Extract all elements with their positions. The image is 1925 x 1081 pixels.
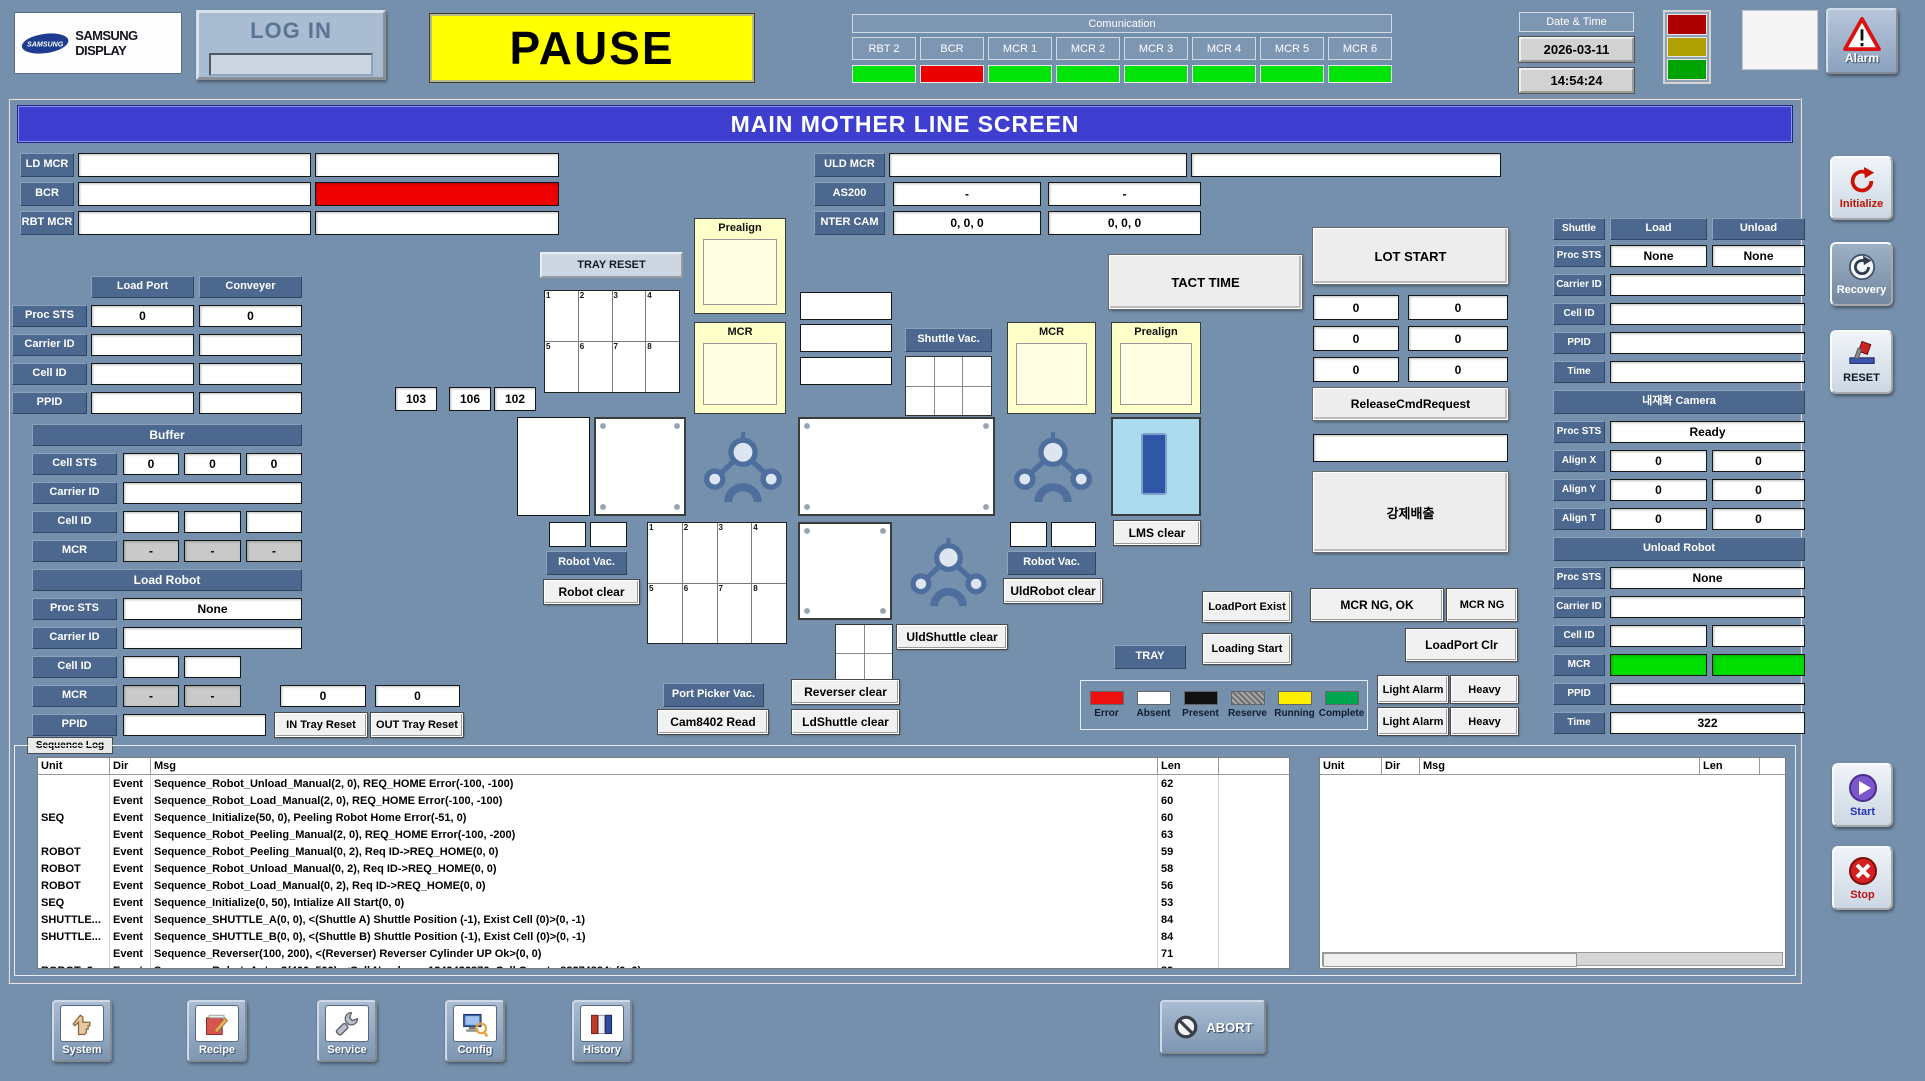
as200-label: AS200 — [814, 182, 885, 206]
lot-counter-field: 0 — [1408, 326, 1508, 351]
vac-slot-right-1 — [1010, 522, 1047, 547]
tray-slot[interactable]: 3 — [718, 523, 752, 583]
stop-x-icon — [1847, 855, 1879, 887]
comm-channel-label: RBT 2 — [852, 37, 916, 60]
log-row[interactable]: Event Sequence_Robot_Unload_Manual(2, 0)… — [38, 775, 1289, 792]
out-tray-grid: 12345678 — [647, 522, 787, 644]
as200-field-1: - — [893, 182, 1041, 206]
lr-mcr-label: MCR — [32, 685, 117, 707]
legend-swatch — [1231, 691, 1265, 705]
log-header-row: Unit Dir Msg Len — [38, 758, 1289, 775]
datetime-panel: Date & Time 2026-03-11 14:54:24 — [1519, 12, 1634, 92]
comm-channel-label: MCR 4 — [1192, 37, 1256, 60]
lr-mcr-2: - — [184, 685, 241, 707]
ur-cell-id-label: Cell ID — [1553, 625, 1605, 647]
comm-status-light — [1260, 65, 1324, 83]
light-alarm-button-2[interactable]: Light Alarm — [1378, 708, 1448, 735]
ur-mcr-label: MCR — [1553, 654, 1605, 676]
buffer-slot-1 — [800, 292, 892, 320]
start-play-icon — [1847, 772, 1879, 804]
comm-status-light — [1192, 65, 1256, 83]
sequence-log-table-right: Unit Dir Msg Len — [1319, 757, 1786, 969]
communication-channels: RBT 2 BCR MCR 1 MCR 2 — [852, 37, 1392, 83]
load-robot-header: Load Robot — [32, 569, 302, 591]
brand-name: SAMSUNG DISPLAY — [75, 28, 176, 58]
tray-label: TRAY — [1114, 645, 1186, 669]
datetime-title: Date & Time — [1519, 12, 1634, 32]
communication-title: Comunication — [852, 14, 1392, 33]
buf-cell-sts-label: Cell STS — [32, 453, 117, 475]
ur-cell-id-1 — [1610, 625, 1707, 647]
lr-mcr-1: - — [123, 685, 179, 707]
center-cam-label: NTER CAM — [814, 211, 885, 235]
comm-status-light — [1124, 65, 1188, 83]
recovery-button[interactable]: Recovery — [1830, 242, 1893, 306]
ur-ppid-label: PPID — [1553, 683, 1605, 705]
tray-slot[interactable]: 8 — [752, 584, 786, 644]
comm-channel: BCR — [920, 37, 984, 83]
sh-cell-id — [1610, 303, 1805, 325]
cam-proc-sts-label: Proc STS — [1553, 421, 1605, 443]
port-number-106: 106 — [449, 387, 491, 411]
tower-lamp-red — [1667, 14, 1707, 35]
tray-slot[interactable]: 3 — [613, 291, 646, 341]
align-t-1: 0 — [1610, 508, 1707, 530]
comm-channel: MCR 2 — [1056, 37, 1120, 83]
tray-slot[interactable]: 5 — [545, 342, 578, 392]
sh-carrier-id-label: Carrier ID — [1553, 274, 1605, 296]
center-cam-field-1: 0, 0, 0 — [893, 211, 1041, 235]
comm-channel: MCR 3 — [1124, 37, 1188, 83]
warning-triangle-icon — [1842, 17, 1882, 51]
align-x-2: 0 — [1712, 450, 1805, 472]
shuttle-vac-grid — [905, 356, 992, 416]
log-row[interactable]: SEQ Event Sequence_Initialize(50, 0), Pe… — [38, 809, 1289, 826]
camera-header: 내재화 Camera — [1553, 390, 1805, 414]
log-row[interactable]: SHUTTLE... Event Sequence_SHUTTLE_A(0, 0… — [38, 911, 1289, 928]
horizontal-scrollbar[interactable] — [1322, 952, 1783, 966]
status-legend: Error Absent Present Reserve Running — [1080, 680, 1368, 730]
log-col-dir[interactable]: Dir — [1382, 758, 1420, 775]
legend-item: Running — [1273, 691, 1317, 719]
sh-cell-id-label: Cell ID — [1553, 303, 1605, 325]
sh-ppid — [1610, 332, 1805, 354]
lms-station — [1111, 417, 1201, 516]
comm-channel: MCR 6 — [1328, 37, 1392, 83]
vac-slot-left-2 — [590, 522, 627, 547]
login-input[interactable] — [209, 53, 373, 76]
comm-status-light — [1328, 65, 1392, 83]
ur-proc-sts-label: Proc STS — [1553, 567, 1605, 589]
comm-channel-label: MCR 6 — [1328, 37, 1392, 60]
run-status-text: PAUSE — [509, 21, 674, 75]
buf-carrier-id-label: Carrier ID — [32, 482, 117, 504]
tray-slot[interactable]: 5 — [648, 584, 682, 644]
rbt-mcr-field-2 — [315, 211, 559, 235]
mcr-station-right: MCR — [1007, 322, 1096, 414]
blank-indicator-box — [1742, 10, 1818, 70]
unload-robot-header: Unload Robot — [1553, 537, 1805, 561]
align-y-1: 0 — [1610, 479, 1707, 501]
samsung-oval-icon: SAMSUNG — [20, 30, 70, 57]
buf-cell-id-3 — [246, 511, 302, 533]
lp-ppid-2 — [199, 392, 302, 414]
lp-cell-id-label: Cell ID — [12, 363, 87, 385]
lr-carrier-id-label: Carrier ID — [32, 627, 117, 649]
buf-mcr-3: - — [246, 540, 302, 562]
lr-ppid-label: PPID — [32, 714, 117, 736]
loading-start-button[interactable]: Loading Start — [1203, 634, 1291, 664]
comm-status-light — [988, 65, 1052, 83]
lr-cell-id-1 — [123, 656, 179, 678]
lot-counters: 000000 — [1313, 295, 1508, 382]
unload-robot-icon — [1010, 420, 1096, 514]
service-wrench-icon — [325, 1005, 369, 1042]
stage-box-left — [594, 417, 686, 516]
ur-carrier-id — [1610, 596, 1805, 618]
tower-lamp-green — [1667, 59, 1707, 80]
legend-label: Running — [1274, 708, 1315, 719]
lot-counter-field: 0 — [1408, 295, 1508, 320]
tact-time-button[interactable]: TACT TIME — [1109, 255, 1302, 309]
ld-mcr-field-2 — [315, 153, 559, 177]
log-header-row-right: Unit Dir Msg Len — [1320, 758, 1785, 775]
robot-clear-button[interactable]: Robot clear — [544, 580, 639, 604]
log-row[interactable]: Event Sequence_Reverser(100, 200), <(Rev… — [38, 945, 1289, 962]
uldrobot-clear-button[interactable]: UldRobot clear — [1004, 579, 1102, 603]
lot-counter-field: 0 — [1313, 295, 1399, 320]
lp-proc-sts-2: 0 — [199, 305, 302, 327]
legend-label: Error — [1094, 708, 1118, 719]
lp-carrier-id-2 — [199, 334, 302, 356]
loadport-clr-button[interactable]: LoadPort Clr — [1406, 629, 1517, 661]
heavy-button-1[interactable]: Heavy — [1451, 676, 1518, 703]
legend-item: Error — [1085, 691, 1129, 719]
comm-channel-label: MCR 2 — [1056, 37, 1120, 60]
log-row[interactable]: SHUTTLE... Event Sequence_SHUTTLE_B(0, 0… — [38, 928, 1289, 945]
time-display: 14:54:24 — [1519, 68, 1634, 93]
comm-channel: MCR 5 — [1260, 37, 1324, 83]
heavy-button-2[interactable]: Heavy — [1451, 708, 1518, 735]
log-col-len[interactable]: Len — [1700, 758, 1760, 775]
mcr-ng-button[interactable]: MCR NG — [1447, 589, 1517, 621]
release-cmd-request-button[interactable]: ReleaseCmdRequest — [1313, 388, 1508, 420]
buffer-slot-2 — [800, 324, 892, 352]
log-row[interactable]: Event Sequence_Robot_Peeling_Manual(2, 0… — [38, 826, 1289, 843]
system-button[interactable]: System — [52, 1000, 112, 1062]
buf-mcr-2: - — [184, 540, 241, 562]
in-tray-grid: 12345678 — [544, 290, 680, 393]
page-title: MAIN MOTHER LINE SCREEN — [18, 106, 1792, 142]
ur-cell-id-2 — [1712, 625, 1805, 647]
uld-mcr-field-2 — [1191, 153, 1501, 177]
sh-proc-sts-load: None — [1610, 245, 1707, 267]
ur-time: 322 — [1610, 712, 1805, 734]
log-row[interactable]: ROBOT Event Sequence_Robot_Peeling_Manua… — [38, 843, 1289, 860]
tray-slot[interactable]: 7 — [718, 584, 752, 644]
stage-box-center — [798, 417, 995, 516]
comm-channel-label: MCR 5 — [1260, 37, 1324, 60]
buf-cell-id-2 — [184, 511, 241, 533]
sh-time-label: Time — [1553, 361, 1605, 383]
vac-slot-right-2 — [1051, 522, 1096, 547]
force-eject-button[interactable]: 강제배출 — [1313, 472, 1508, 552]
buf-mcr-label: MCR — [32, 540, 117, 562]
log-col-unit[interactable]: Unit — [1320, 758, 1382, 775]
align-x-1: 0 — [1610, 450, 1707, 472]
log-col-dir[interactable]: Dir — [110, 758, 151, 775]
system-hand-icon — [60, 1005, 104, 1042]
robot-vac-right-label[interactable]: Robot Vac. — [1007, 551, 1096, 575]
legend-label: Complete — [1319, 708, 1365, 719]
tray-slot[interactable]: 2 — [579, 291, 612, 341]
initialize-button[interactable]: Initialize — [1830, 156, 1893, 220]
as200-field-2: - — [1048, 182, 1201, 206]
log-row[interactable]: SEQ Event Sequence_Initialize(0, 50), In… — [38, 894, 1289, 911]
vac-slot-left-1 — [549, 522, 586, 547]
legend-label: Present — [1182, 708, 1219, 719]
lr-count-out: 0 — [375, 685, 460, 707]
lp-proc-sts-1: 0 — [91, 305, 194, 327]
lp-cell-id-2 — [199, 363, 302, 385]
legend-swatch — [1090, 691, 1124, 705]
mcr-station-left: MCR — [694, 322, 786, 414]
legend-label: Absent — [1137, 708, 1171, 719]
ldshuttle-clear-button[interactable]: LdShuttle clear — [792, 710, 899, 734]
main-screen: SAMSUNG SAMSUNG DISPLAY LOG IN PAUSE Com… — [0, 0, 1925, 1081]
in-tray-reset-button[interactable]: IN Tray Reset — [275, 713, 367, 737]
buffer-slot-3 — [800, 357, 892, 385]
lot-start-button[interactable]: LOT START — [1313, 228, 1508, 284]
lr-proc-sts: None — [123, 598, 302, 620]
ur-mcr-2 — [1712, 654, 1805, 676]
buf-mcr-1: - — [123, 540, 179, 562]
reverser-clear-button[interactable]: Reverser clear — [792, 680, 899, 704]
recipe-pencil-icon — [195, 1005, 239, 1042]
legend-item: Reserve — [1226, 691, 1270, 719]
prealign-station-right: Prealign — [1111, 322, 1201, 414]
comm-channel: MCR 1 — [988, 37, 1052, 83]
config-monitor-icon — [453, 1005, 497, 1042]
tray-slot[interactable]: 1 — [648, 523, 682, 583]
lr-ppid — [123, 714, 266, 736]
legend-item: Present — [1179, 691, 1223, 719]
cam8402-read-button[interactable]: Cam8402 Read — [658, 710, 768, 734]
login-button[interactable]: LOG IN — [196, 10, 386, 80]
prealign-station-left: Prealign — [694, 218, 786, 314]
reverser-grid — [835, 624, 893, 682]
sh-proc-sts-unload: None — [1712, 245, 1805, 267]
comm-channel-label: BCR — [920, 37, 984, 60]
align-t-label: Align T — [1553, 508, 1605, 530]
abort-circle-slash-icon — [1173, 1014, 1199, 1040]
comm-channel: RBT 2 — [852, 37, 916, 83]
communication-panel: Comunication RBT 2 BCR MCR 1 — [852, 14, 1400, 82]
recipe-button[interactable]: Recipe — [187, 1000, 247, 1062]
lr-cell-id-label: Cell ID — [32, 656, 117, 678]
align-y-2: 0 — [1712, 479, 1805, 501]
lp-cell-id-1 — [91, 363, 194, 385]
ur-proc-sts: None — [1610, 567, 1805, 589]
uld-mcr-field-1 — [889, 153, 1187, 177]
rbt-mcr-field-1 — [78, 211, 311, 235]
config-button[interactable]: Config — [445, 1000, 505, 1062]
shuttle-unload-header: Unload — [1712, 218, 1805, 240]
log-row[interactable]: ROBOT Event Sequence_Robot_Load_Manual(0… — [38, 877, 1289, 894]
buf-cell-sts-2: 0 — [184, 453, 241, 475]
alarm-button[interactable]: Alarm — [1826, 8, 1898, 74]
log-col-msg[interactable]: Msg — [1420, 758, 1700, 775]
comm-channel-label: MCR 1 — [988, 37, 1052, 60]
reverser-robot-icon — [905, 530, 992, 614]
lr-carrier-id — [123, 627, 302, 649]
stage-box-lower — [798, 522, 892, 620]
ur-carrier-id-label: Carrier ID — [1553, 596, 1605, 618]
ld-mcr-label: LD MCR — [20, 153, 74, 177]
initialize-icon — [1847, 166, 1877, 196]
log-row[interactable]: ROBOT Event Sequence_Robot_Unload_Manual… — [38, 860, 1289, 877]
lp-carrier-id-label: Carrier ID — [12, 334, 87, 356]
lot-counter-field: 0 — [1408, 357, 1508, 382]
legend-swatch — [1325, 691, 1359, 705]
tower-lamp-yellow — [1667, 37, 1707, 58]
cam-proc-sts: Ready — [1610, 421, 1805, 443]
stop-button[interactable]: Stop — [1832, 846, 1893, 910]
ur-mcr-1 — [1610, 654, 1707, 676]
lp-carrier-id-1 — [91, 334, 194, 356]
legend-item: Complete — [1320, 691, 1364, 719]
loadport-col-header: Load Port — [91, 276, 194, 298]
log-col-msg[interactable]: Msg — [151, 758, 1158, 775]
alarm-label: Alarm — [1845, 51, 1879, 65]
tray-reset-header: TRAY RESET — [540, 252, 683, 278]
load-robot-icon — [700, 420, 786, 514]
tray-slot[interactable]: 2 — [683, 523, 717, 583]
legend-item: Absent — [1132, 691, 1176, 719]
robot-vac-left-label[interactable]: Robot Vac. — [546, 551, 627, 575]
shuttle-header: Shuttle — [1553, 218, 1605, 240]
comm-channel-label: MCR 3 — [1124, 37, 1188, 60]
log-row[interactable]: Event Sequence_Robot_Load_Manual(2, 0), … — [38, 792, 1289, 809]
buf-carrier-id — [123, 482, 302, 504]
lms-clear-button[interactable]: LMS clear — [1114, 521, 1200, 545]
sh-time — [1610, 361, 1805, 383]
date-display: 2026-03-11 — [1519, 37, 1634, 62]
align-y-label: Align Y — [1553, 479, 1605, 501]
ur-ppid — [1610, 683, 1805, 705]
log-col-len[interactable]: Len — [1158, 758, 1219, 775]
run-status-banner: PAUSE — [430, 14, 754, 82]
conveyer-col-header: Conveyer — [199, 276, 302, 298]
bcr-label: BCR — [20, 182, 74, 206]
lot-counter-field: 0 — [1313, 357, 1399, 382]
center-cam-field-2: 0, 0, 0 — [1048, 211, 1201, 235]
log-row[interactable]: ROBOT_3 Event Sequence_Robot_Auto_3(400,… — [38, 962, 1289, 969]
shuttle-vac-label[interactable]: Shuttle Vac. — [905, 328, 992, 352]
tower-lamp — [1663, 10, 1711, 84]
abort-button[interactable]: ABORT — [1160, 1000, 1266, 1054]
sh-carrier-id — [1610, 274, 1805, 296]
align-x-label: Align X — [1553, 450, 1605, 472]
uldshuttle-clear-button[interactable]: UldShuttle clear — [897, 625, 1007, 649]
legend-swatch — [1278, 691, 1312, 705]
mcr-ng-ok-button[interactable]: MCR NG, OK — [1311, 589, 1443, 621]
reset-button[interactable]: RESET — [1830, 330, 1893, 394]
align-t-2: 0 — [1712, 508, 1805, 530]
lot-counter-field: 0 — [1313, 326, 1399, 351]
buf-cell-id-1 — [123, 511, 179, 533]
port-number-102: 102 — [494, 387, 536, 411]
brand-logo: SAMSUNG SAMSUNG DISPLAY — [14, 12, 182, 74]
sh-ppid-label: PPID — [1553, 332, 1605, 354]
buf-cell-sts-1: 0 — [123, 453, 179, 475]
lr-cell-id-2 — [184, 656, 241, 678]
shuttle-load-header: Load — [1610, 218, 1707, 240]
tray-slot[interactable]: 4 — [646, 291, 679, 341]
bcr-field-2 — [315, 182, 559, 206]
legend-label: Reserve — [1228, 708, 1267, 719]
lp-ppid-1 — [91, 392, 194, 414]
tray-slot[interactable]: 4 — [752, 523, 786, 583]
lr-count-in: 0 — [280, 685, 366, 707]
bcr-field-1 — [78, 182, 311, 206]
out-tray-reset-button[interactable]: OUT Tray Reset — [371, 713, 463, 737]
conveyor-box-1 — [517, 417, 590, 516]
buffer-header: Buffer — [32, 424, 302, 446]
recovery-icon — [1847, 252, 1877, 282]
tray-slot[interactable]: 7 — [613, 342, 646, 392]
tray-slot[interactable]: 8 — [646, 342, 679, 392]
log-col-unit[interactable]: Unit — [38, 758, 110, 775]
tray-slot[interactable]: 6 — [579, 342, 612, 392]
login-label: LOG IN — [199, 18, 383, 44]
lp-proc-sts-label: Proc STS — [12, 305, 87, 327]
port-number-103: 103 — [395, 387, 437, 411]
rbt-mcr-label: RBT MCR — [20, 211, 74, 235]
light-alarm-button-1[interactable]: Light Alarm — [1378, 676, 1448, 703]
buf-cell-id-label: Cell ID — [32, 511, 117, 533]
ur-time-label: Time — [1553, 712, 1605, 734]
sequence-log-table-left: Unit Dir Msg Len Event Sequence_Robot_Un… — [37, 757, 1290, 969]
comm-channel: MCR 4 — [1192, 37, 1256, 83]
svg-text:SAMSUNG: SAMSUNG — [27, 40, 64, 48]
loadport-exist-button[interactable]: LoadPort Exist — [1203, 592, 1291, 622]
port-picker-vac-label[interactable]: Port Picker Vac. — [663, 683, 764, 707]
ld-mcr-field-1 — [78, 153, 311, 177]
start-button[interactable]: Start — [1832, 763, 1893, 827]
request-value-field — [1313, 434, 1508, 462]
uld-mcr-label: ULD MCR — [814, 153, 885, 177]
lr-proc-sts-label: Proc STS — [32, 598, 117, 620]
legend-swatch — [1184, 691, 1218, 705]
history-button[interactable]: History — [572, 1000, 632, 1062]
tray-slot[interactable]: 1 — [545, 291, 578, 341]
tray-slot[interactable]: 6 — [683, 584, 717, 644]
service-button[interactable]: Service — [317, 1000, 377, 1062]
lms-cell — [1141, 433, 1167, 495]
comm-status-light — [1056, 65, 1120, 83]
history-books-icon — [580, 1005, 624, 1042]
sh-proc-sts-label: Proc STS — [1553, 245, 1605, 267]
buf-cell-sts-3: 0 — [246, 453, 302, 475]
reset-icon — [1847, 340, 1877, 370]
legend-swatch — [1137, 691, 1171, 705]
lp-ppid-label: PPID — [12, 392, 87, 414]
comm-status-light — [920, 65, 984, 83]
comm-status-light — [852, 65, 916, 83]
